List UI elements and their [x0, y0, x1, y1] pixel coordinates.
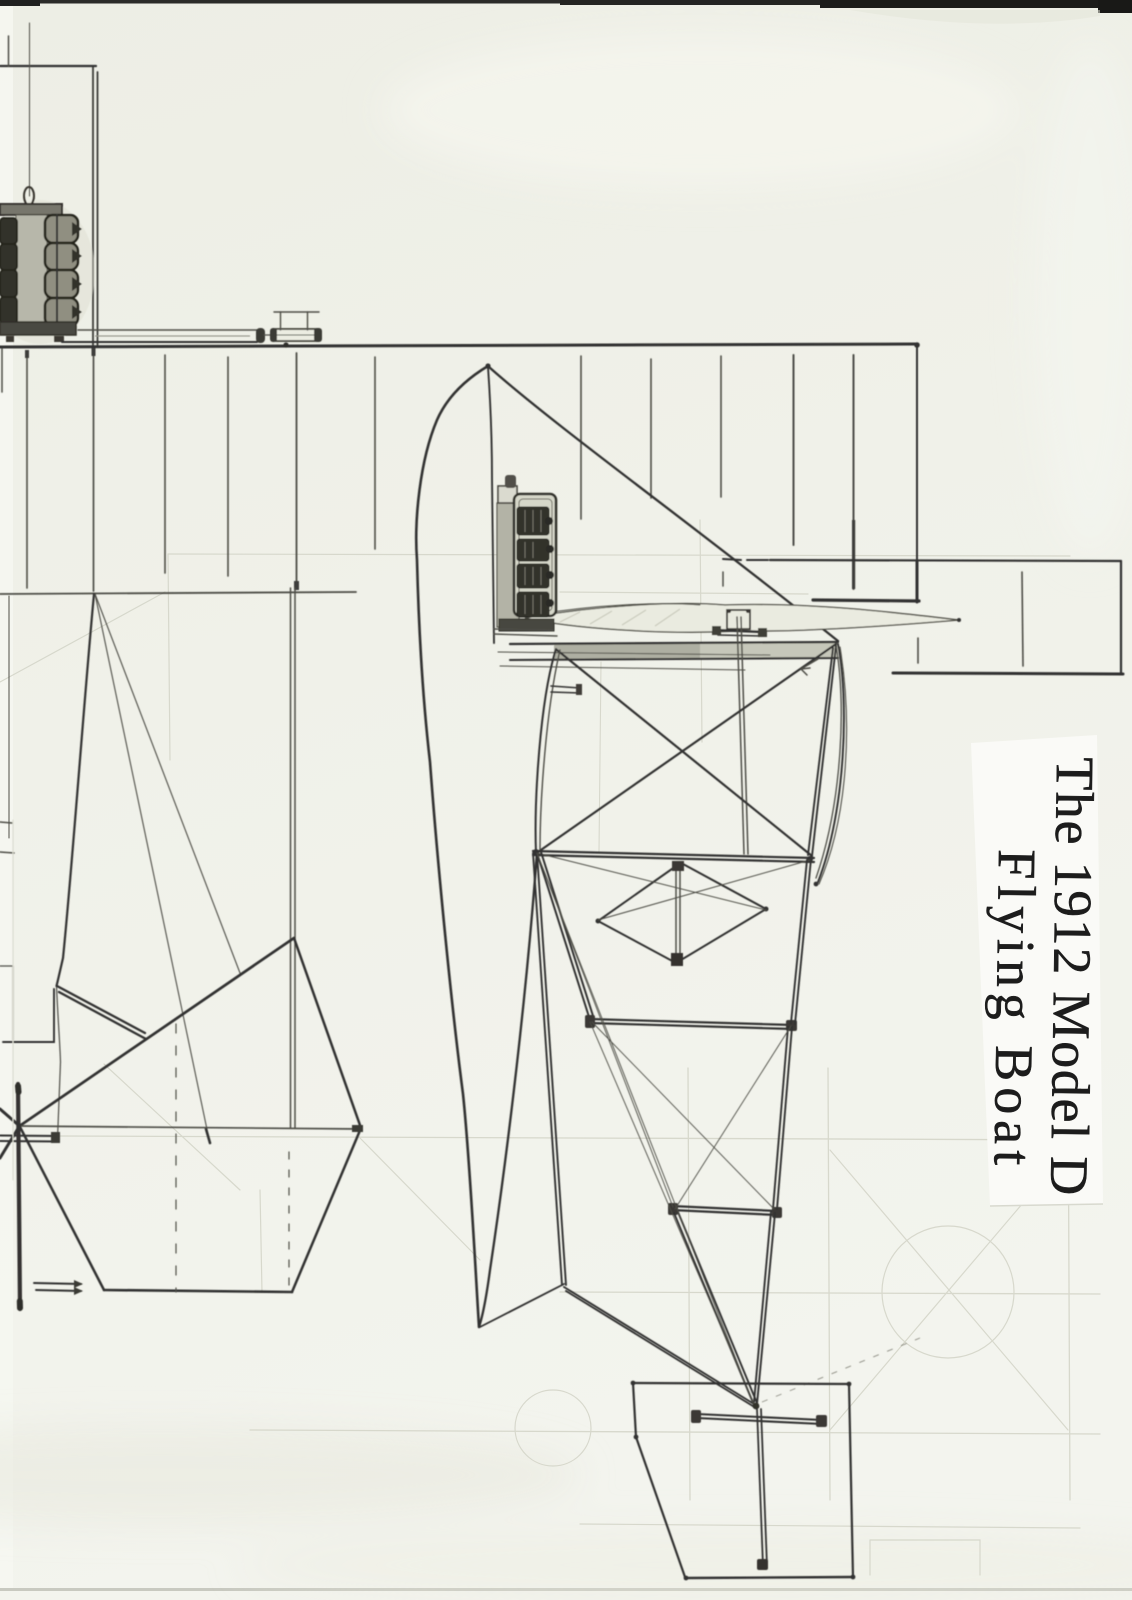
svg-text:The 1912 Model D: The 1912 Model D [1039, 757, 1105, 1196]
